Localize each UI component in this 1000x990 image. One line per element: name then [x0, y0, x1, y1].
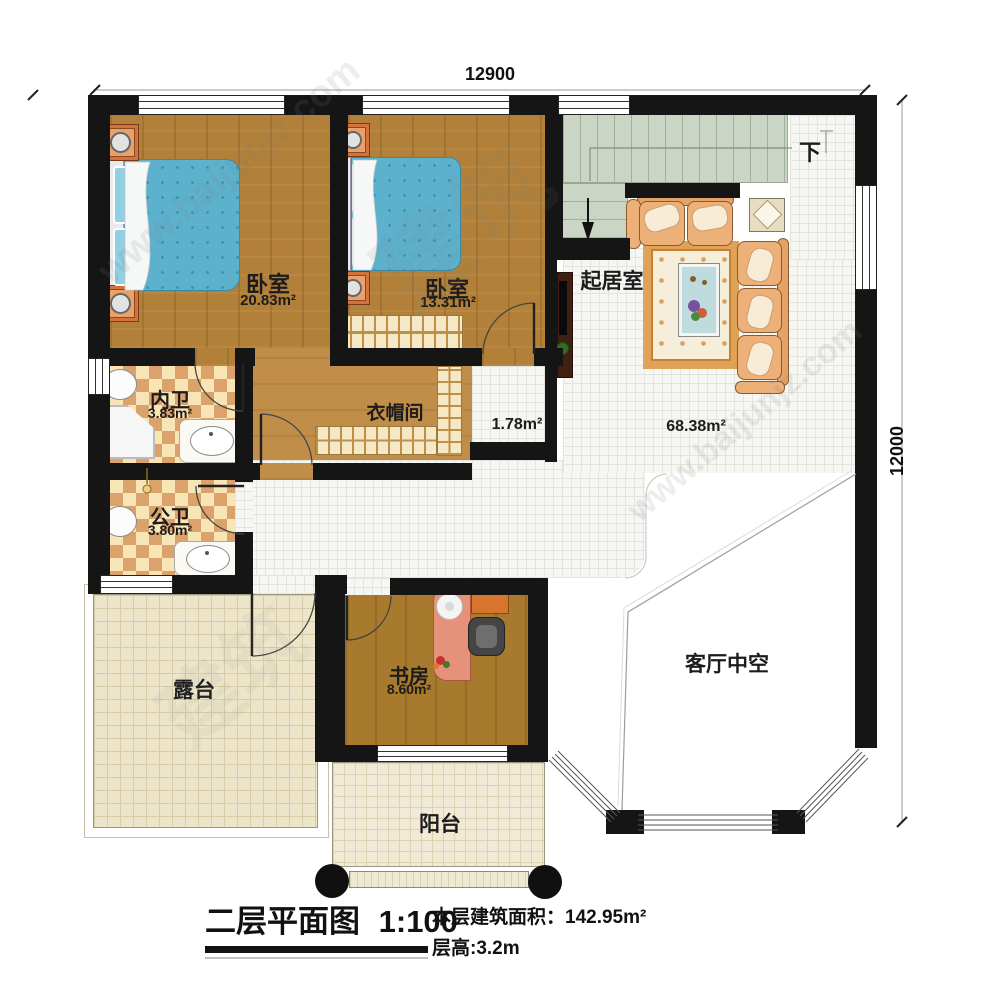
- wall: [390, 578, 548, 595]
- living-void-label: 客厅中空: [678, 648, 776, 678]
- wardrobe: [437, 366, 462, 456]
- window: [855, 185, 877, 290]
- bed-pillow: [113, 228, 137, 286]
- table-cup: [690, 276, 696, 282]
- wall: [330, 115, 348, 366]
- void-boundary-inner: [618, 471, 851, 806]
- wall: [88, 463, 260, 480]
- door-opening: [235, 482, 253, 532]
- public-bath-area: 3.80m²: [136, 522, 204, 538]
- balcony-railing: [349, 871, 529, 888]
- bed-pillow: [352, 216, 373, 268]
- bed-duvet: [124, 159, 240, 291]
- title-block: 二层平面图 1:100: [205, 896, 458, 959]
- wall: [545, 115, 563, 252]
- desk-flower: [443, 661, 450, 668]
- sink-basin: [186, 545, 230, 573]
- wall: [313, 463, 472, 480]
- wardrobe: [337, 315, 463, 350]
- door-opening: [345, 578, 390, 595]
- wall: [470, 442, 555, 460]
- column: [528, 865, 562, 899]
- top-dimension-value: 12900: [430, 64, 550, 85]
- bed-pillow: [352, 162, 373, 214]
- table-cup: [702, 280, 707, 285]
- floor-plan: 卧室 20.83m² 卧室 13.31m² 起居室 68.38m² 1.78m²…: [0, 0, 1000, 990]
- balcony-label: 阳台: [413, 808, 467, 838]
- window: [88, 358, 110, 395]
- door-opening: [260, 463, 313, 480]
- wall: [508, 745, 548, 762]
- wall: [528, 578, 548, 762]
- bay-window-glazing: [549, 749, 868, 830]
- door-opening: [482, 348, 534, 366]
- terrace-floor: [93, 594, 318, 828]
- wall: [625, 183, 740, 198]
- bedroom2-area: 13.31m²: [408, 294, 488, 311]
- wall: [173, 575, 250, 594]
- desk-lamp-center: [445, 602, 454, 611]
- column: [315, 864, 349, 898]
- living-room-area: 68.38m²: [652, 418, 740, 436]
- stairs-lower-run: [562, 183, 628, 239]
- ensuite-bath-area: 3.83m²: [138, 405, 202, 421]
- door-opening: [250, 575, 315, 594]
- coffee-table: [679, 264, 719, 336]
- title-underline-bar: [205, 946, 428, 953]
- office-chair-seat: [476, 625, 497, 648]
- hallway-area: 1.78m²: [477, 416, 557, 434]
- stairs-upper-run: [562, 114, 788, 183]
- cloakroom-label: 衣帽间: [358, 398, 432, 425]
- sink-basin: [190, 426, 234, 456]
- window: [100, 575, 173, 594]
- wall: [534, 348, 563, 366]
- window: [138, 95, 285, 115]
- wall: [235, 348, 253, 482]
- tv: [559, 281, 567, 335]
- study-area: 8.60m²: [377, 681, 441, 697]
- bedroom1-area: 20.83m²: [224, 292, 312, 309]
- window: [558, 95, 630, 115]
- window: [377, 745, 508, 762]
- sink-faucet: [205, 551, 209, 555]
- bay-window-post: [772, 810, 805, 834]
- wall: [88, 575, 100, 594]
- floor-height-line: 层高:3.2m: [432, 933, 520, 960]
- wall: [315, 578, 345, 762]
- void-boundary: [622, 474, 856, 810]
- wardrobe: [315, 426, 437, 455]
- wall: [545, 238, 630, 260]
- plan-title: 二层平面图: [205, 904, 360, 939]
- sink-faucet: [209, 432, 213, 436]
- bed-pillow: [113, 166, 137, 224]
- table-flower: [691, 312, 700, 321]
- stairs-down-label: 下: [796, 135, 824, 167]
- living-room-label: 起居室: [577, 265, 647, 295]
- title-underline-thin: [205, 957, 428, 959]
- window: [362, 95, 510, 115]
- wall: [315, 745, 377, 762]
- floor-area-value: 142.95m²: [565, 907, 646, 928]
- right-dimension-value: 12000: [887, 391, 909, 511]
- sofa-armrest: [735, 381, 785, 394]
- wall: [330, 348, 482, 366]
- floor-area-line: 本层建筑面积：142.95m²: [432, 902, 646, 929]
- floor-area-label: 本层建筑面积：: [432, 907, 565, 928]
- terrace-label: 露台: [167, 674, 221, 704]
- bay-window-post: [606, 810, 644, 834]
